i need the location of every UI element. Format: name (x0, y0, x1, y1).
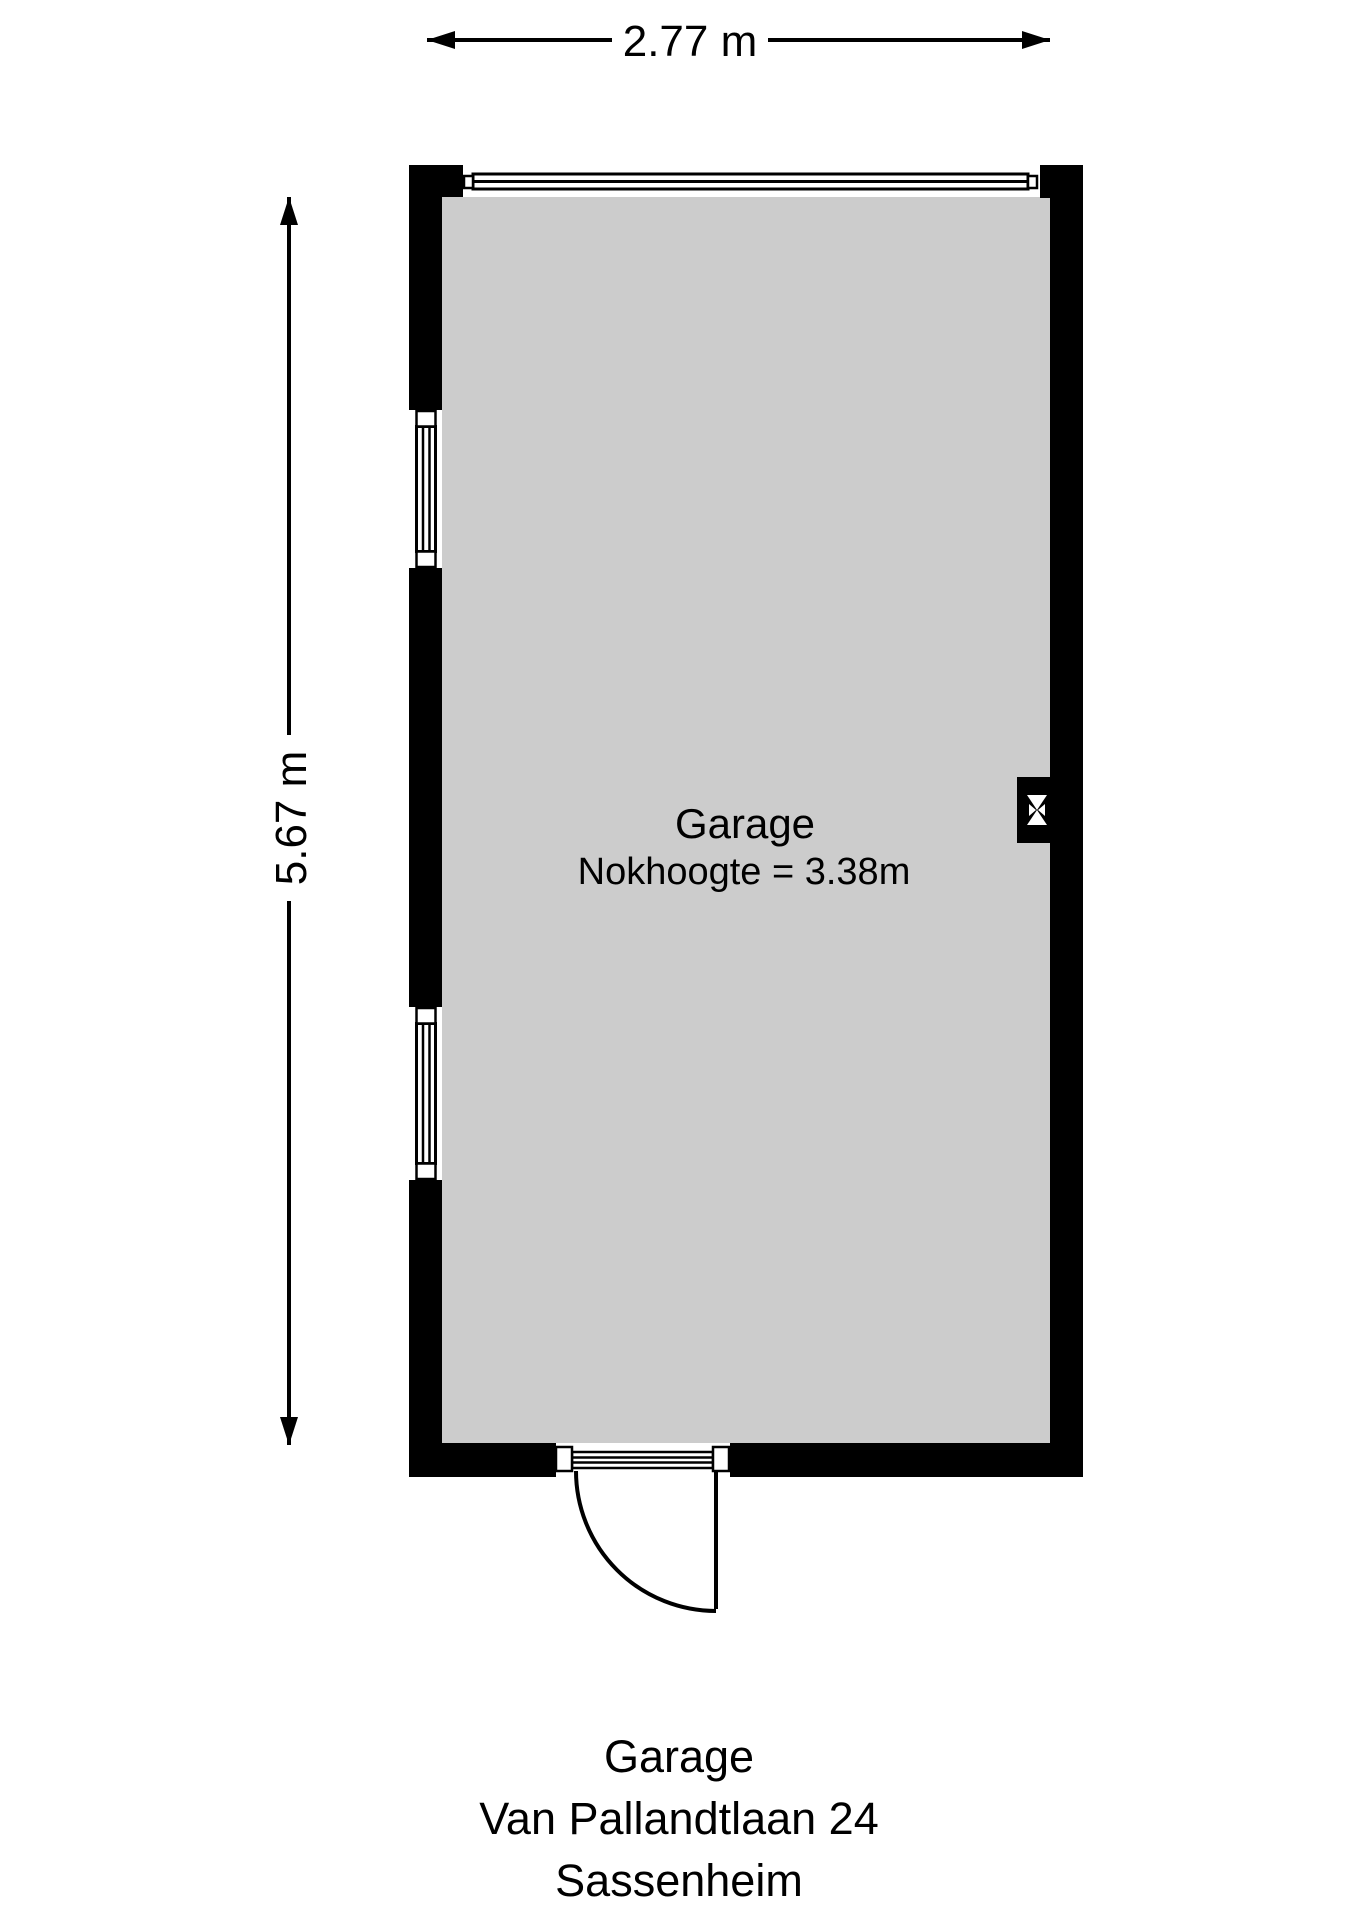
window-left-upper-cap-top (417, 411, 436, 427)
wall-right (1050, 165, 1083, 1477)
door-swing-arc (576, 1471, 716, 1611)
flue-icon (1027, 795, 1047, 825)
garage-plan: Garage Nokhoogte = 3.38m (409, 165, 1083, 1611)
wall-left (409, 165, 442, 1477)
room-ridge-height-label: Nokhoogte = 3.38m (578, 851, 911, 893)
height-arrow-top-head (280, 197, 298, 225)
corner-top-right (1040, 165, 1083, 198)
window-top (463, 165, 1040, 197)
floorplan-canvas: 2.77 m 5.67 m (0, 0, 1358, 1920)
height-dimension-label: 5.67 m (267, 751, 316, 886)
caption-address: Van Pallandtlaan 24 (479, 1793, 879, 1844)
corner-top-left (409, 165, 463, 197)
door-threshold-frame (572, 1452, 713, 1468)
floorplan-page: 2.77 m 5.67 m (0, 0, 1358, 1920)
caption-room: Garage (604, 1731, 754, 1782)
width-dimension-label: 2.77 m (623, 17, 758, 66)
wall-bottom (409, 1443, 1083, 1477)
window-top-cap-right (1028, 176, 1037, 188)
window-left-upper-frame (417, 427, 436, 552)
caption: Garage Van Pallandtlaan 24 Sassenheim (479, 1731, 879, 1906)
window-left-lower-frame (417, 1024, 436, 1164)
height-arrow-bottom-head (280, 1417, 298, 1445)
caption-city: Sassenheim (555, 1855, 803, 1906)
door-post-left (556, 1447, 572, 1471)
room-name-label: Garage (675, 800, 815, 847)
door-post-right (713, 1447, 729, 1471)
width-dimension: 2.77 m (427, 10, 1050, 70)
width-arrow-right-head (1022, 31, 1050, 49)
door (556, 1443, 730, 1611)
window-left-upper (409, 410, 442, 568)
window-left-lower (409, 1007, 442, 1180)
window-left-lower-cap-top (417, 1008, 436, 1024)
height-dimension: 5.67 m (260, 197, 320, 1445)
window-left-lower-cap-bottom (417, 1164, 436, 1180)
window-left-upper-cap-bottom (417, 552, 436, 568)
width-arrow-left-head (427, 31, 455, 49)
window-top-cap-left (464, 176, 473, 188)
